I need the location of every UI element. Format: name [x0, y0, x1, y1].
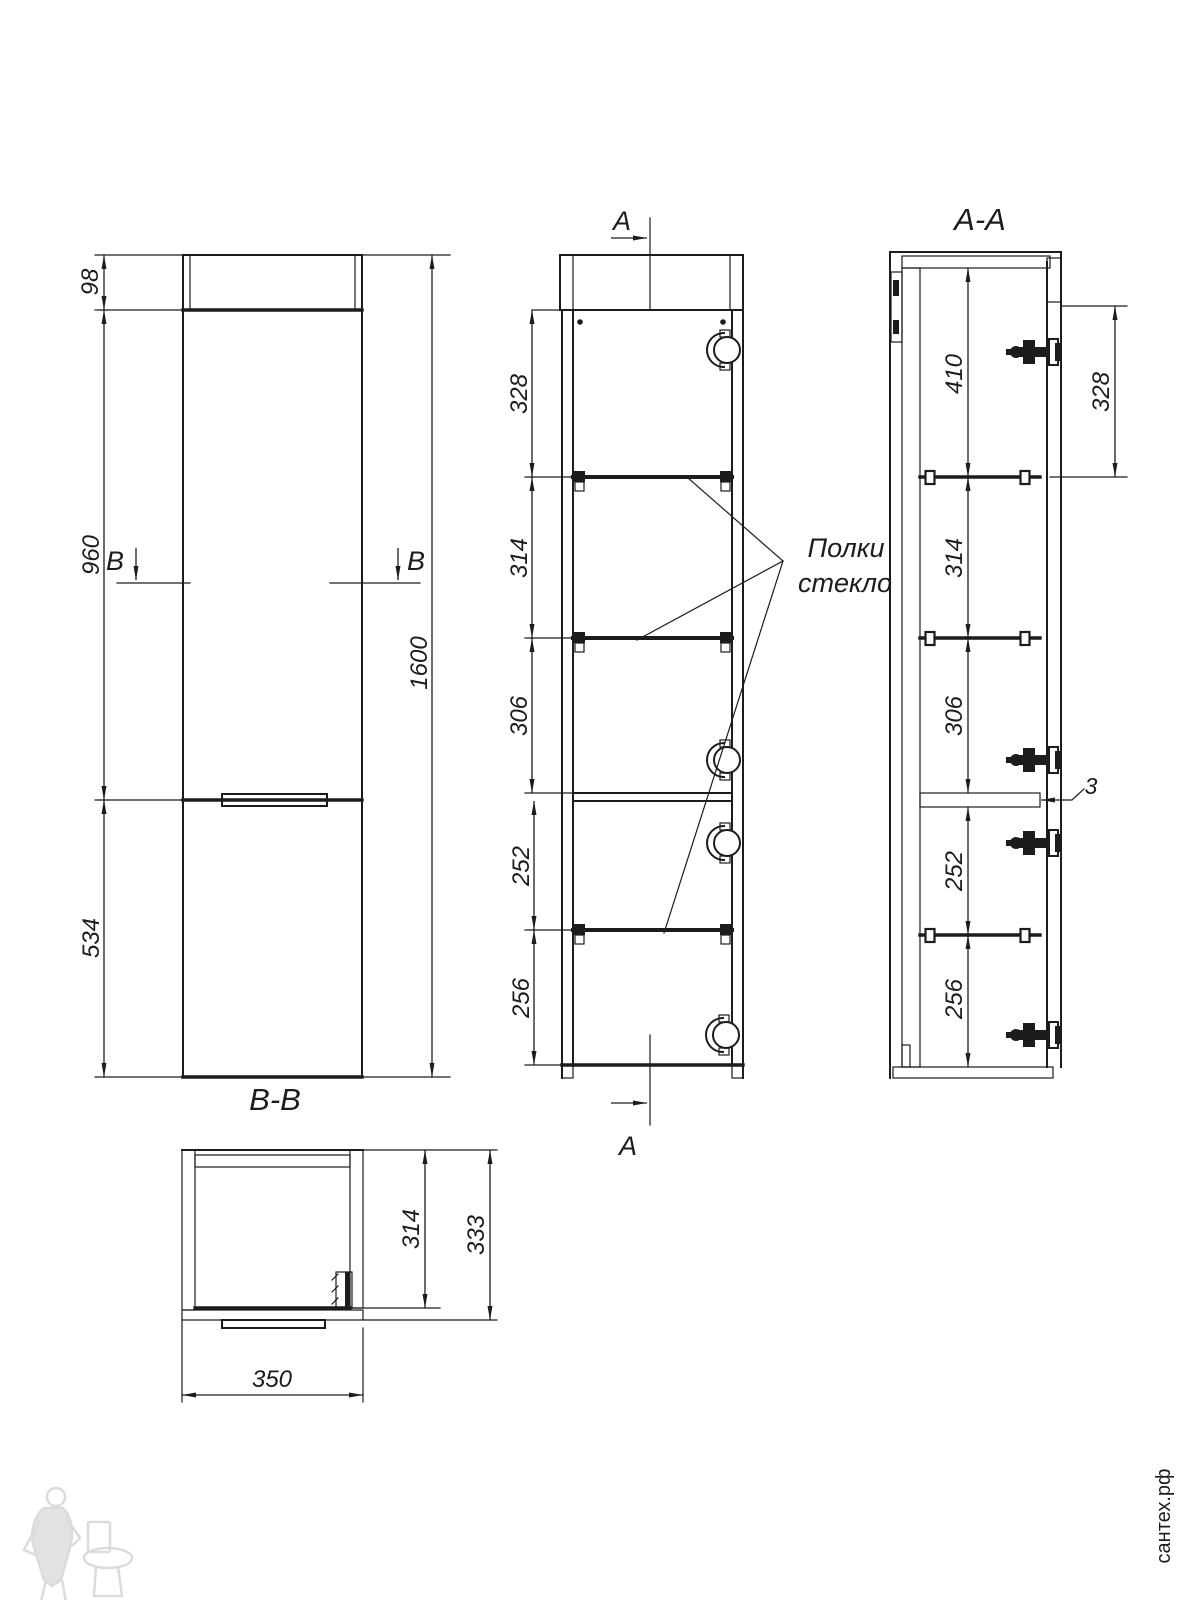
dim-crown-height: 98: [77, 268, 104, 295]
dim-gap: 3: [1085, 773, 1098, 799]
cut-mark-b-right: B: [330, 546, 425, 583]
side-outline: [532, 255, 743, 1078]
hinge-icon: [707, 330, 740, 370]
side-view: A A 328 314 306 252 256: [506, 206, 892, 1161]
dim-lower-section: 534: [78, 918, 105, 958]
aa-shelf-1: [920, 471, 1040, 484]
cut-mark-b-left: B: [106, 546, 190, 583]
front-divider: [95, 794, 362, 806]
dim-aa-shelf-5: 256: [941, 978, 968, 1020]
dim-aa-shelf-4: 252: [941, 851, 968, 892]
cut-label-b-left: B: [106, 546, 124, 576]
section-aa-title: A-A: [952, 202, 1006, 237]
aa-back-foot: [902, 1045, 910, 1067]
shelf-callout: Полки стекло: [637, 478, 892, 933]
drawing-canvas: B B 98 960 534 1600: [0, 0, 1200, 1600]
section-aa-view: A-A: [890, 202, 1127, 1078]
bb-left-wall-section: [182, 1150, 195, 1310]
cut-mark-a-top: A: [611, 206, 650, 310]
dim-width: 350: [252, 1366, 293, 1393]
aa-shelf-3: [920, 929, 1040, 942]
aa-top-panel-section: [902, 256, 1050, 268]
hinge-section-icon: [1006, 830, 1060, 856]
front-view: B B 98 960 534 1600: [77, 255, 450, 1077]
drawing-page: B B 98 960 534 1600: [0, 0, 1200, 1600]
dim-shelf-1: 328: [506, 373, 533, 414]
callout-text-line1: Полки: [808, 533, 885, 563]
dim-shelf-2: 314: [506, 538, 533, 578]
dim-outer-depth: 333: [463, 1214, 490, 1255]
aa-divider-section: [920, 793, 1040, 807]
dim-shelf-5: 256: [508, 977, 535, 1019]
bb-dimensions: 314 333 350: [182, 1150, 497, 1402]
bb-door-handle: [222, 1320, 325, 1328]
hinge-icon: [706, 1015, 739, 1055]
hinge-section-icon: [1006, 1022, 1060, 1048]
cut-label-a-top: A: [611, 206, 631, 236]
bb-outline: [182, 1150, 497, 1328]
aa-bottom-panel-section: [893, 1067, 1053, 1078]
aa-outline: [890, 252, 1061, 1078]
callout-text-line2: стекло: [798, 568, 892, 598]
glass-shelf-2: [573, 632, 732, 652]
gap-dimension: 3: [1041, 773, 1098, 800]
dim-door-top: 328: [1088, 371, 1115, 412]
glass-shelf-3: [573, 924, 732, 944]
dim-inner-depth: 314: [398, 1209, 425, 1249]
cut-label-b-right: B: [407, 546, 425, 576]
glass-shelf-1: [573, 471, 732, 491]
dim-top-inner: 410: [941, 353, 968, 394]
cut-label-a-bottom: A: [617, 1131, 637, 1161]
section-bb-view: B-B 314 333 350: [182, 1082, 497, 1402]
bb-door-section: [182, 1310, 363, 1320]
aa-shelf-2: [920, 632, 1040, 645]
side-crown-strip: [560, 255, 743, 310]
watermark-logo: [24, 1488, 132, 1600]
aa-dimensions: 410 314 306 252 256 328 3: [941, 268, 1127, 1067]
dim-upper-section: 960: [78, 534, 105, 575]
hinge-section-icon: [1006, 747, 1060, 773]
section-bb-title: B-B: [249, 1082, 301, 1117]
dim-shelf-4: 252: [508, 846, 535, 887]
hinge-section-icon: [1006, 339, 1060, 365]
front-crown-strip: [183, 255, 362, 310]
front-outline: [95, 255, 450, 1077]
aa-door-top-rail-section: [1047, 258, 1061, 302]
cut-mark-a-bottom: A: [611, 1035, 650, 1161]
dim-total-height: 1600: [406, 636, 433, 690]
dim-aa-shelf-3: 306: [941, 695, 968, 736]
watermark-site-text: сантех.рф: [1153, 1469, 1175, 1564]
bb-hinge-detail: [332, 1272, 352, 1308]
bb-back-panel-section: [195, 1155, 350, 1167]
front-dimensions: 98 960 534 1600: [77, 255, 433, 1077]
dim-shelf-3: 306: [506, 695, 533, 736]
dim-aa-shelf-2: 314: [941, 538, 968, 578]
hinge-icon: [707, 823, 740, 863]
aa-back-panel-section: [902, 268, 920, 1067]
